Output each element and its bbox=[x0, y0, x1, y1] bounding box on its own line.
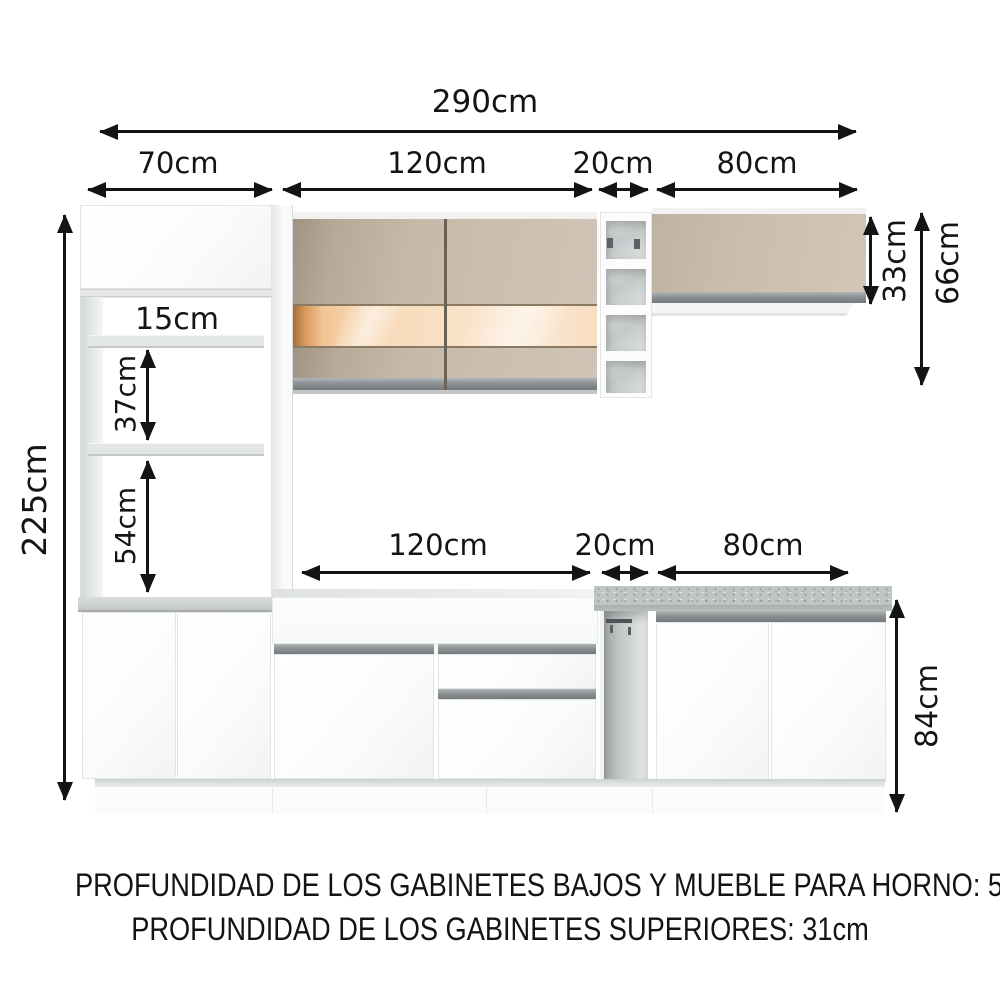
wall-cabinet-handle-strip bbox=[652, 292, 866, 303]
hutch-shelf-2 bbox=[88, 443, 264, 456]
dim-total-height-label: 225cm bbox=[18, 440, 54, 560]
tall-cabinet-top-shelf-edge bbox=[80, 289, 272, 297]
upper-cabinet-bottom-shadow bbox=[293, 390, 597, 394]
niche-hook-1 bbox=[610, 625, 613, 633]
dim-top-120-arrow bbox=[283, 188, 592, 191]
plinth-seam-1 bbox=[272, 786, 273, 814]
dim-opening-54-arrow bbox=[146, 461, 149, 592]
middle-base-drawer-handle bbox=[438, 689, 596, 699]
niche-rail bbox=[606, 619, 632, 623]
dim-66-arrow bbox=[920, 213, 923, 385]
middle-base-drawer-1 bbox=[438, 654, 596, 689]
plinth-seam-2 bbox=[486, 786, 487, 814]
left-base-countertop bbox=[78, 597, 275, 612]
dim-33-arrow bbox=[869, 217, 872, 304]
middle-base-door bbox=[274, 654, 434, 779]
right-base-granite-countertop bbox=[594, 586, 892, 605]
dim-opening-37-label: 37cm bbox=[111, 352, 141, 436]
base-shadow-band bbox=[95, 779, 885, 786]
tower-opening-3 bbox=[606, 315, 646, 351]
footer-depth-upper: PROFUNDIDAD DE LOS GABINETES SUPERIORES:… bbox=[75, 912, 925, 947]
dim-top-120-label: 120cm bbox=[357, 148, 517, 178]
tall-cabinet-top-door bbox=[80, 205, 272, 289]
tower-opening-4 bbox=[606, 361, 646, 393]
dim-total-height-arrow bbox=[63, 215, 66, 800]
dim-mid-20-label: 20cm bbox=[555, 530, 675, 560]
plinth-seam-3 bbox=[652, 786, 653, 814]
dim-top-80-arrow bbox=[657, 188, 857, 191]
towel-niche bbox=[604, 611, 648, 783]
dim-top-80-label: 80cm bbox=[687, 148, 827, 178]
dim-33-label: 33cm bbox=[880, 217, 912, 305]
left-base-door-1 bbox=[82, 612, 176, 779]
dim-opening-54-label: 54cm bbox=[111, 484, 141, 568]
middle-base-top-panel bbox=[272, 597, 598, 644]
middle-base-handle-gap bbox=[434, 644, 438, 654]
left-base-door-2 bbox=[177, 612, 271, 779]
dim-top-70-label: 70cm bbox=[108, 148, 248, 178]
dim-mid-120-arrow bbox=[302, 571, 590, 574]
dim-opening-15-label: 15cm bbox=[117, 304, 237, 336]
dim-top-20-arrow bbox=[599, 188, 648, 191]
tower-hinge-left bbox=[607, 238, 613, 248]
wall-cabinet-door bbox=[652, 214, 866, 292]
dim-mid-80-label: 80cm bbox=[693, 530, 833, 560]
tower-hinge-right bbox=[634, 239, 640, 249]
right-base-door-1 bbox=[656, 622, 769, 782]
dim-mid-120-label: 120cm bbox=[358, 530, 518, 560]
middle-base-drawer-2 bbox=[438, 699, 596, 779]
upper-cabinet-top-face bbox=[293, 212, 597, 219]
dim-top-20-label: 20cm bbox=[553, 148, 673, 178]
dim-84-label: 84cm bbox=[912, 662, 944, 750]
footer-depth-lower: PROFUNDIDAD DE LOS GABINETES BAJOS Y MUE… bbox=[75, 868, 925, 903]
right-base-handle-strip bbox=[656, 611, 886, 622]
dim-total-width-label: 290cm bbox=[385, 86, 585, 119]
glass-reflection-2 bbox=[464, 306, 567, 346]
dim-total-width-arrow bbox=[100, 130, 856, 133]
wall-cabinet-bottom-panel bbox=[652, 303, 854, 316]
plinth bbox=[95, 786, 884, 814]
tower-opening-2 bbox=[606, 269, 646, 305]
dim-top-70-arrow bbox=[88, 188, 272, 191]
kitchen-dimension-diagram: 290cm 70cm 120cm 20cm 80cm 225cm 15cm 37… bbox=[0, 0, 1000, 1000]
upper-cabinet-side-column bbox=[272, 205, 293, 600]
right-base-door-2 bbox=[771, 622, 886, 782]
dim-66-label: 66cm bbox=[933, 219, 965, 307]
dim-opening-37-arrow bbox=[146, 350, 149, 440]
upper-cabinet-door-divider bbox=[444, 219, 447, 390]
niche-hook-2 bbox=[628, 627, 631, 635]
dim-84-arrow bbox=[895, 600, 898, 812]
dim-mid-20-arrow bbox=[602, 571, 648, 574]
dim-mid-80-arrow bbox=[658, 571, 848, 574]
